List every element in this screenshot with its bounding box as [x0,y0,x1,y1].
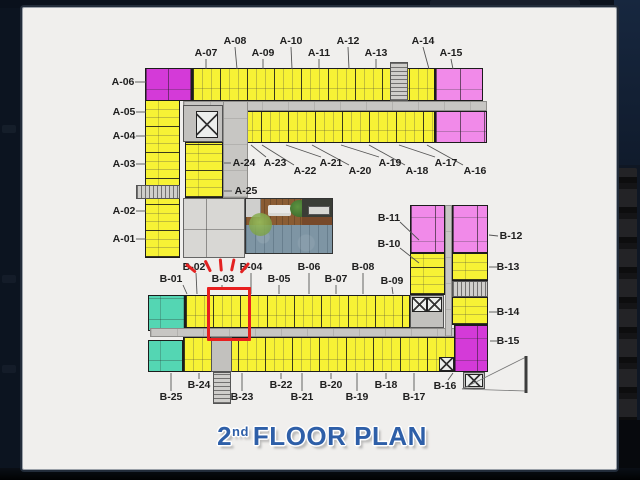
stair-core-b [211,337,232,372]
unit-label-a-22: A-22 [294,165,317,177]
unit-label-a-09: A-09 [252,47,275,59]
floor-plan-title: 2ndFLOOR PLAN [217,421,427,452]
unit-label-a-03: A-03 [113,158,136,170]
stairs-wing [452,281,488,297]
unit-label-b-05: B-05 [268,273,291,285]
unit-label-a-01: A-01 [113,233,136,245]
backdrop-window-texture [617,168,637,423]
unit-label-b-16: B-16 [434,380,457,392]
photo-pavilion-floor [302,217,333,225]
stairs-left-wing [136,185,180,199]
backdrop-navy [614,0,640,165]
unit-block-b-25 [148,340,183,372]
unit-label-a-17: A-17 [435,157,458,169]
unit-block-b-10 [410,253,445,295]
backdrop-smudge [430,0,580,7]
unit-label-b-21: B-21 [291,391,314,403]
unit-label-a-25: A-25 [235,185,258,197]
unit-label-b-15: B-15 [497,335,520,347]
unit-label-a-16: A-16 [464,165,487,177]
units-column-a01-a05 [145,100,180,258]
unit-label-b-11: B-11 [378,212,400,224]
unit-label-a-18: A-18 [406,165,429,177]
unit-label-a-06: A-06 [112,76,135,88]
photo-lounge-chairs [268,205,291,213]
screenshot-root: { "floor_title": {"number": "2", "ordina… [0,0,640,480]
unit-label-a-08: A-08 [224,35,247,47]
unit-label-b-01: B-01 [160,273,183,285]
unit-label-b-24: B-24 [188,379,211,391]
corridor-building-b [150,328,455,337]
stairs-top-bar [390,62,408,101]
unit-label-b-20: B-20 [320,379,343,391]
unit-label-a-10: A-10 [280,35,303,47]
unit-label-a-04: A-04 [113,130,136,142]
stairs-below-b-row [213,372,231,404]
unit-block-b-15 [454,325,488,372]
courtyard-pool-photo [245,198,333,254]
unit-label-a-02: A-02 [113,205,136,217]
unit-label-b-09: B-09 [381,275,404,287]
unit-label-b-25: B-25 [160,391,183,403]
unit-block-a-15 [435,68,483,101]
unit-block-b-11 [410,205,445,253]
elevator-shaft-b2 [427,297,442,312]
elevator-shaft-b1 [412,297,427,312]
unit-label-a-11: A-11 [308,47,330,59]
unit-label-a-15: A-15 [440,47,463,59]
units-column-a24-a25 [185,142,223,198]
unit-block-b-01 [148,295,185,331]
title-number: 2 [217,421,232,451]
backdrop-smudge [2,365,16,373]
highlight-box-b-03 [207,287,251,341]
unit-label-a-12: A-12 [337,35,360,47]
corridor-wing [445,205,452,337]
unit-block-b-13 [452,253,488,281]
unit-label-b-17: B-17 [403,391,426,403]
unit-label-a-23: A-23 [264,157,287,169]
unit-label-b-22: B-22 [270,379,293,391]
unit-label-b-10: B-10 [378,238,401,250]
unit-label-a-20: A-20 [349,165,372,177]
backdrop-smudge [2,125,16,133]
units-row-a23-a17 [233,111,435,143]
unit-label-a-21: A-21 [320,157,343,169]
unit-label-a-24: A-24 [233,157,256,169]
unit-label-a-13: A-13 [365,47,388,59]
unit-label-a-05: A-05 [113,106,136,118]
unit-block-a-16 [435,111,487,143]
unit-label-b-18: B-18 [375,379,398,391]
elevator-shaft-a [196,111,218,138]
backdrop-right-strip [614,0,640,480]
unit-label-b-08: B-08 [352,261,375,273]
corridor-inner-vertical [223,101,248,198]
amenity-rooms-block [183,198,245,258]
shaft-b-row-end [439,357,454,371]
title-ordinal: nd [232,424,249,439]
unit-block-b-12 [452,205,488,253]
unit-label-b-06: B-06 [298,261,321,273]
unit-block-b-14 [452,297,488,325]
backdrop-smudge [2,275,16,283]
unit-label-b-19: B-19 [346,391,369,403]
photo-table [308,206,330,215]
unit-label-b-14: B-14 [497,306,520,318]
unit-label-a-19: A-19 [379,157,402,169]
backdrop-left-strip [0,0,23,480]
photo-tree [249,213,272,236]
unit-label-a-14: A-14 [412,35,435,47]
unit-label-b-13: B-13 [497,261,520,273]
unit-label-b-03: B-03 [212,273,235,285]
unit-label-b-12: B-12 [500,230,523,242]
shaft-x-below-b15 [465,374,483,387]
unit-label-b-23: B-23 [231,391,254,403]
title-text: FLOOR PLAN [253,421,427,451]
unit-label-a-07: A-07 [195,47,218,59]
unit-block-a-06 [145,68,192,101]
unit-label-b-07: B-07 [325,273,348,285]
